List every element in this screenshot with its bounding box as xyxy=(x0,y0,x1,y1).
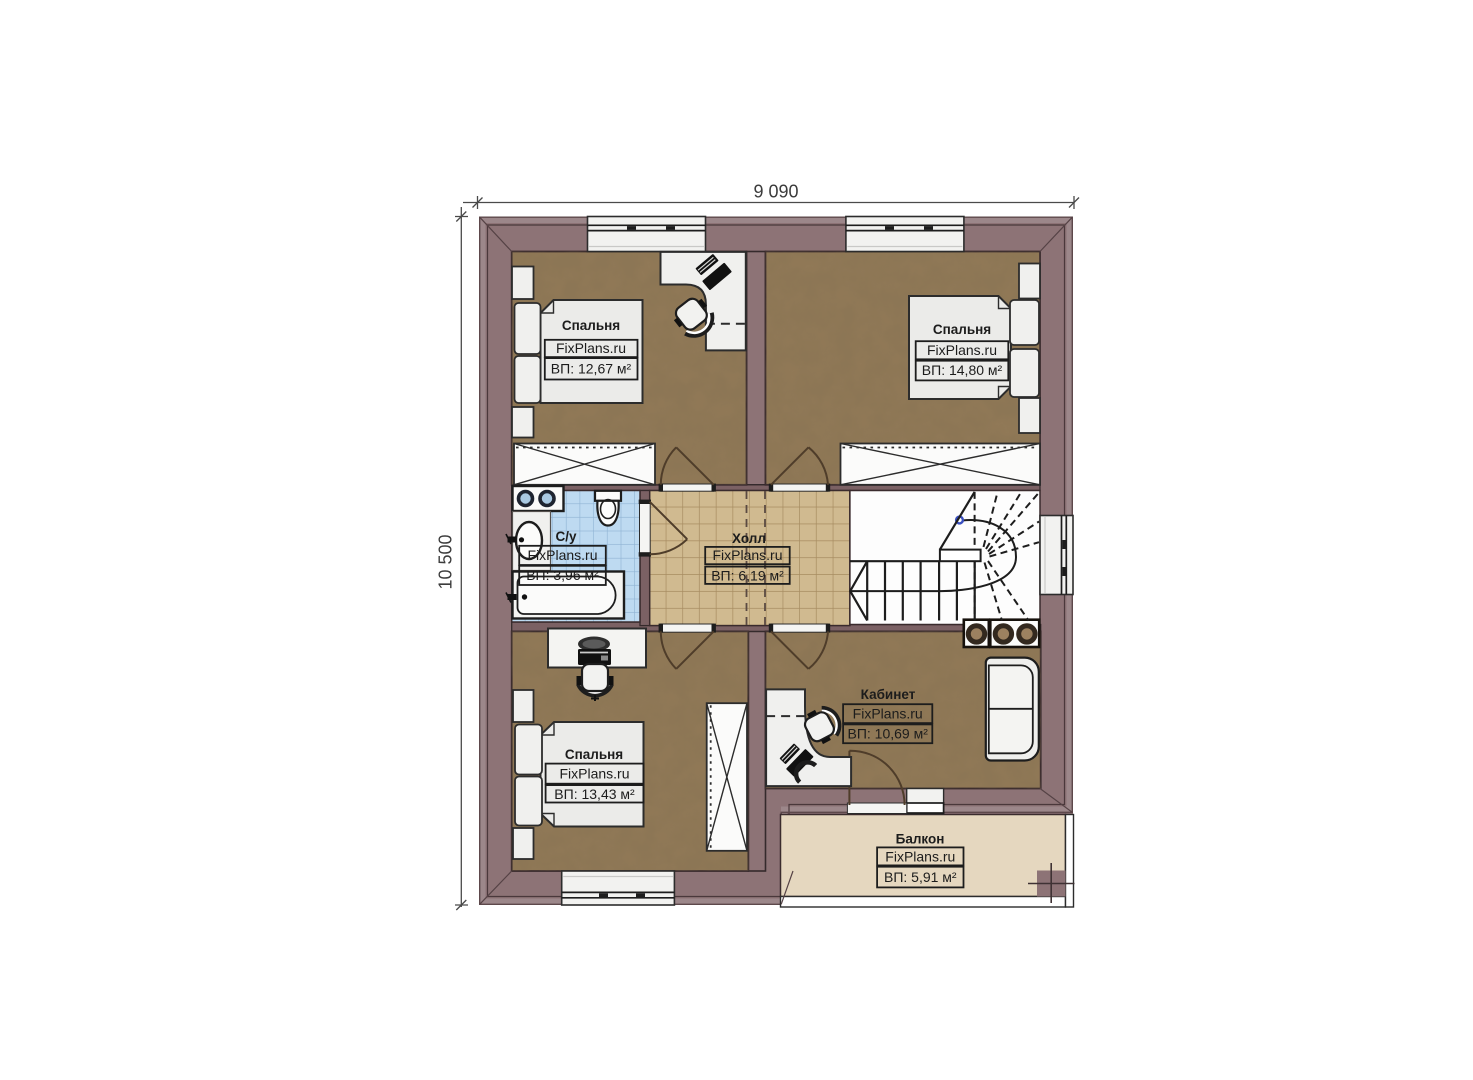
svg-text:9 090: 9 090 xyxy=(753,182,798,202)
svg-text:ВП: 12,67 м²: ВП: 12,67 м² xyxy=(551,361,632,377)
svg-text:FixPlans.ru: FixPlans.ru xyxy=(527,547,597,563)
svg-text:Кабинет: Кабинет xyxy=(861,687,916,702)
svg-text:FixPlans.ru: FixPlans.ru xyxy=(556,340,626,356)
svg-text:ВП: 5,91 м²: ВП: 5,91 м² xyxy=(884,869,957,885)
svg-text:FixPlans.ru: FixPlans.ru xyxy=(853,706,923,722)
svg-text:Спальня: Спальня xyxy=(565,747,623,762)
svg-text:Спальня: Спальня xyxy=(562,318,620,333)
svg-text:ВП: 6,19 м²: ВП: 6,19 м² xyxy=(711,568,784,584)
svg-text:Балкон: Балкон xyxy=(896,832,945,847)
svg-text:С/у: С/у xyxy=(555,529,577,544)
svg-text:ВП: 3,96 м²: ВП: 3,96 м² xyxy=(526,567,599,583)
svg-text:FixPlans.ru: FixPlans.ru xyxy=(885,849,955,865)
svg-text:FixPlans.ru: FixPlans.ru xyxy=(927,342,997,358)
svg-text:ВП: 13,43 м²: ВП: 13,43 м² xyxy=(554,786,635,802)
svg-text:FixPlans.ru: FixPlans.ru xyxy=(712,547,782,563)
svg-text:FixPlans.ru: FixPlans.ru xyxy=(559,766,629,782)
svg-text:ВП: 14,80 м²: ВП: 14,80 м² xyxy=(922,362,1003,378)
svg-text:10 500: 10 500 xyxy=(436,534,456,589)
svg-text:Спальня: Спальня xyxy=(933,322,991,337)
svg-text:ВП: 10,69 м²: ВП: 10,69 м² xyxy=(848,726,929,742)
svg-text:Холл: Холл xyxy=(732,531,766,546)
